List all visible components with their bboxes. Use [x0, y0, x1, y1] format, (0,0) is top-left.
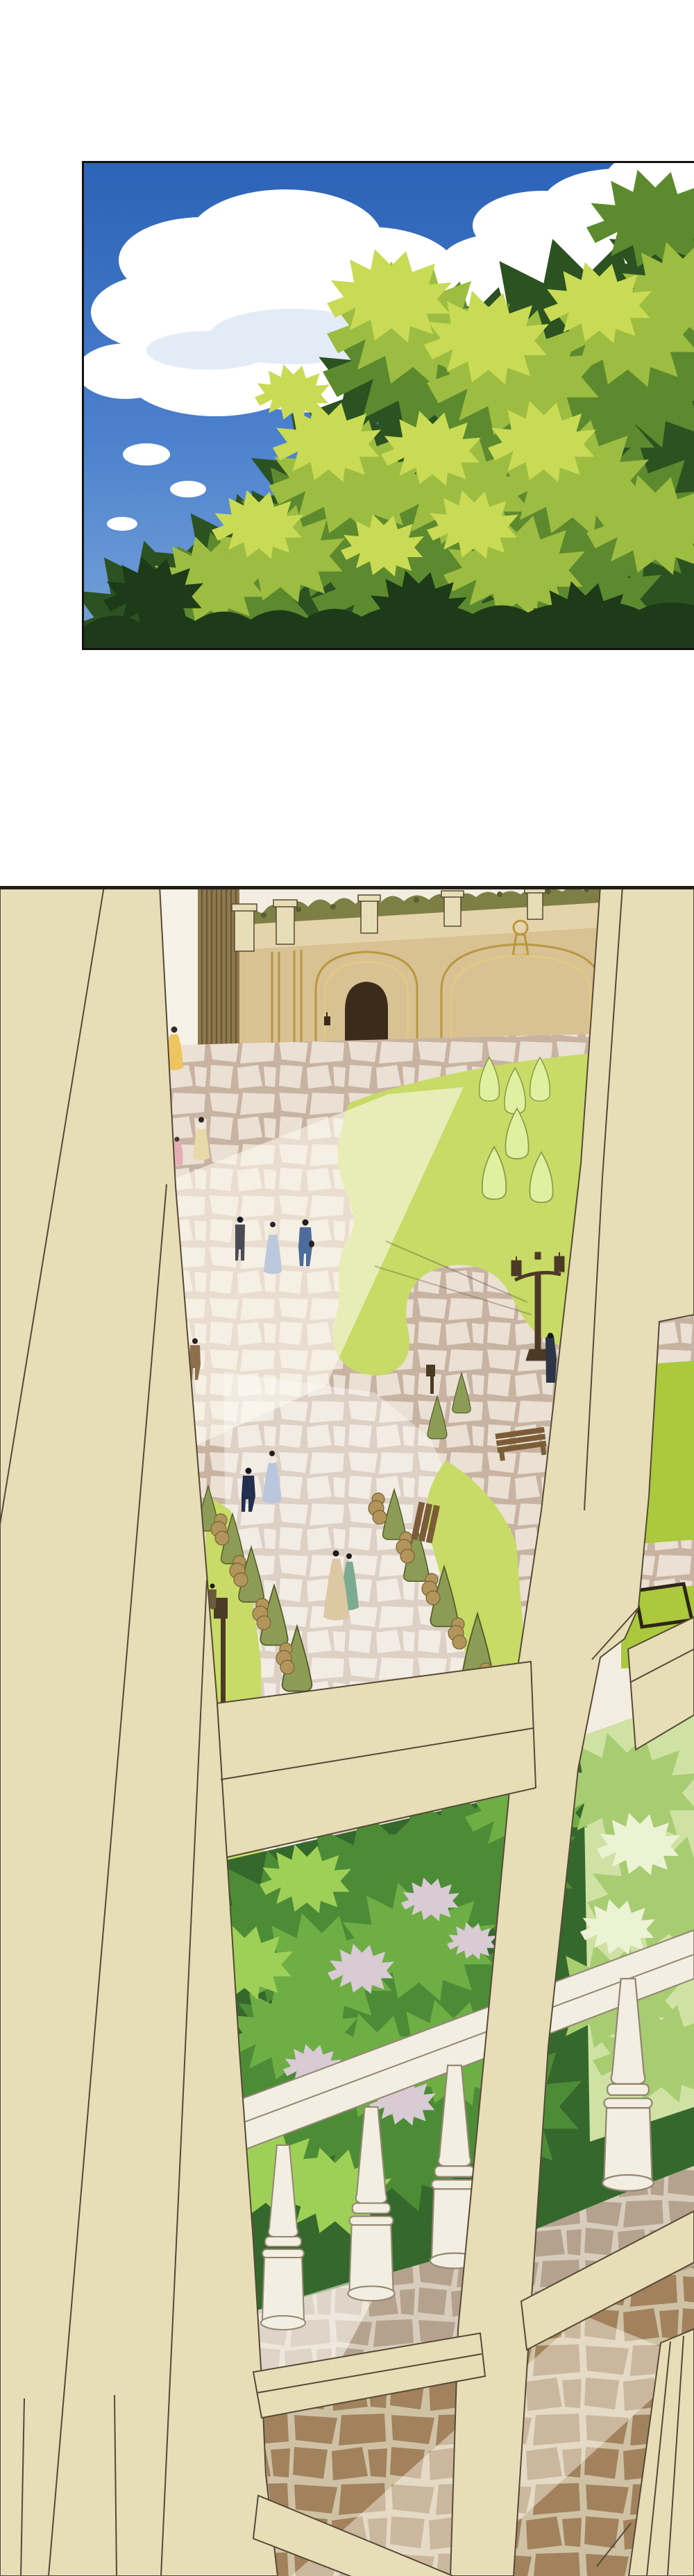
page-canvas	[0, 0, 694, 2576]
garden-scene	[0, 886, 694, 2576]
sky-scene	[84, 163, 694, 648]
panel-garden	[0, 886, 694, 2576]
panel-top-border	[0, 886, 694, 889]
panel-sky	[82, 161, 694, 650]
